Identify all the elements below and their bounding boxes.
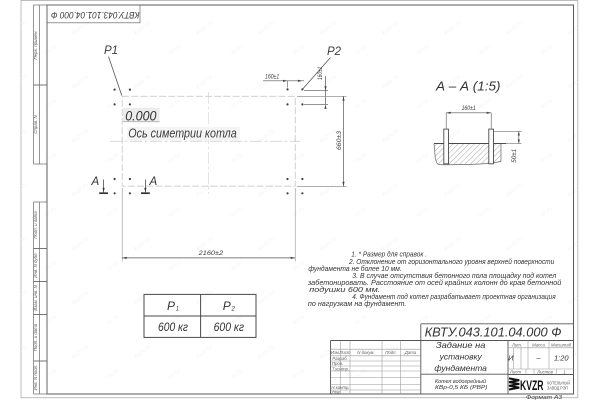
svg-text:Масштаб: Масштаб: [551, 343, 572, 348]
svg-text:установку: установку: [439, 352, 483, 361]
svg-text:Перв. примен.: Перв. примен.: [33, 30, 38, 59]
svg-text:3. В случае отсутствия бетонно: 3. В случае отсутствия бетонного пола пл…: [352, 272, 556, 280]
svg-text:600 кг: 600 кг: [158, 320, 188, 334]
svg-text:подушки 600 мм.: подушки 600 мм.: [309, 286, 380, 294]
svg-text:160±1: 160±1: [317, 67, 324, 80]
svg-text:Подп. и дата: Подп. и дата: [33, 323, 38, 351]
svg-text:Формат А3: Формат А3: [526, 395, 562, 400]
svg-text:КВТУ.043.101.04.000 Ф: КВТУ.043.101.04.000 Ф: [425, 324, 562, 339]
svg-text:Лит.: Лит.: [511, 343, 522, 348]
svg-text:КВТУ.043.101.04.000 Ф: КВТУ.043.101.04.000 Ф: [51, 10, 140, 20]
svg-text:КВр-0,5 КБ (РВР): КВр-0,5 КБ (РВР): [435, 385, 488, 391]
svg-text:забетонировать. Расстояние от: забетонировать. Расстояние от осей крайн…: [307, 279, 562, 287]
svg-text:Т.контр.: Т.контр.: [332, 366, 349, 371]
svg-text:Лист: Лист: [338, 350, 350, 355]
svg-text:–: –: [535, 353, 541, 362]
svg-text:P1: P1: [104, 45, 118, 57]
svg-text:Дата: Дата: [404, 350, 417, 355]
svg-text:50±1: 50±1: [511, 149, 518, 163]
svg-text:Масса: Масса: [532, 343, 545, 348]
svg-text:А – А (1:5): А – А (1:5): [435, 78, 501, 93]
svg-text:4. Фундамент под котел разраба: 4. Фундамент под котел разрабатывает про…: [352, 293, 556, 301]
svg-text:А: А: [149, 176, 158, 188]
svg-text:660±3: 660±3: [336, 130, 343, 150]
svg-text:P2: P2: [327, 46, 342, 58]
svg-text:2160±2: 2160±2: [198, 250, 224, 257]
svg-text:N докум.: N докум.: [357, 350, 374, 355]
svg-text:Утв.: Утв.: [331, 390, 341, 395]
svg-text:Подп.: Подп.: [385, 350, 396, 355]
svg-text:Задание на: Задание на: [436, 341, 486, 350]
svg-text:600 кг: 600 кг: [214, 320, 244, 334]
svg-text:160±1: 160±1: [265, 74, 279, 81]
svg-text:по нагрузкам на фундамент.: по нагрузкам на фундамент.: [308, 300, 407, 308]
svg-text:Листов: Листов: [536, 370, 553, 375]
svg-text:2. Отклонение от горизонтально: 2. Отклонение от горизонтального уровня …: [348, 258, 554, 266]
svg-text:160±1: 160±1: [462, 105, 476, 112]
svg-text:И: И: [508, 354, 514, 363]
svg-text:Подп. и дата: Подп. и дата: [33, 211, 38, 239]
svg-text:Взам. инв. N: Взам. инв. N: [33, 284, 38, 310]
svg-text:Инв. N дубл.: Инв. N дубл.: [33, 252, 38, 277]
svg-text:Котел водогрейный: Котел водогрейный: [435, 378, 487, 385]
svg-text:Инв. N подл.: Инв. N подл.: [33, 365, 38, 391]
svg-text:ЗАВОД РЭП: ЗАВОД РЭП: [547, 386, 568, 391]
svg-text:А: А: [91, 176, 100, 188]
svg-text:1:20: 1:20: [554, 354, 569, 363]
svg-text:Ось симетрии котла: Ось симетрии котла: [128, 126, 236, 140]
svg-text:1. * Размер для справок .: 1. * Размер для справок .: [351, 250, 427, 258]
svg-text:0.000: 0.000: [125, 109, 157, 124]
svg-text:Лист: Лист: [509, 370, 521, 375]
svg-text:KVZR: KVZR: [520, 378, 544, 393]
svg-text:фундамента не более 10 мм.: фундамента не более 10 мм.: [308, 265, 401, 273]
svg-text:Справ. N: Справ. N: [33, 114, 38, 133]
svg-text:фундамента: фундамента: [434, 364, 487, 373]
